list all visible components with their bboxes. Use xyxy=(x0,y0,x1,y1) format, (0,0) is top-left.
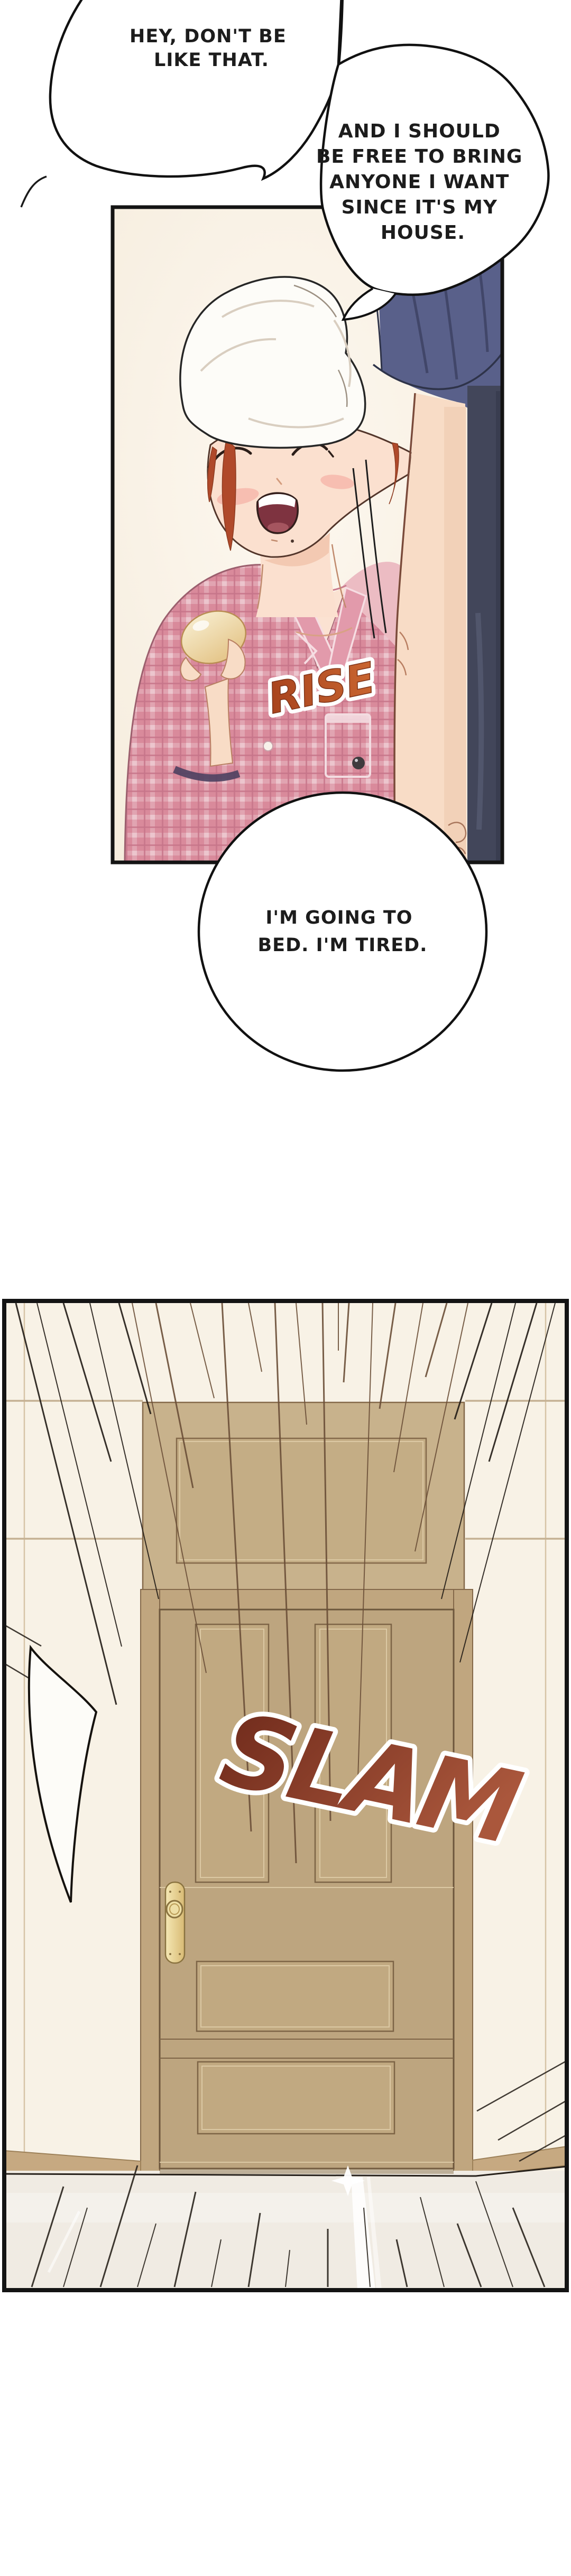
bubble-3-line-1: I'M GOING TO xyxy=(265,907,412,928)
pocket-piping xyxy=(326,714,370,723)
door-panel-bottom xyxy=(198,2062,394,2134)
bubble-2-line-4: SINCE IT'S MY xyxy=(342,197,498,218)
bubble-3-line-2: BED. I'M TIRED. xyxy=(258,935,428,956)
bubble-2-line-2: BE FREE TO BRING xyxy=(316,146,523,168)
bubble-1-line-2: LIKE THAT. xyxy=(154,50,269,71)
comic-page: RISE RISE xyxy=(0,0,571,2576)
bubble-2-line-1: AND I SHOULD xyxy=(338,120,501,142)
bubble-2-line-5: HOUSE. xyxy=(381,222,465,244)
door-handle xyxy=(165,1882,185,1963)
tongue xyxy=(268,523,289,532)
door-knob xyxy=(167,1901,182,1918)
speech-bubble-3 xyxy=(199,793,486,1071)
bubble-1-line-1: HEY, DON'T BE xyxy=(130,26,287,47)
door xyxy=(160,1610,454,2169)
handle-plate xyxy=(165,1882,185,1963)
panel-laughing-woman: RISE RISE xyxy=(113,207,508,862)
door-floor-shadow xyxy=(160,2169,454,2174)
comic-art: RISE RISE xyxy=(0,0,571,2576)
mole xyxy=(291,540,294,543)
dark-button-highlight xyxy=(355,759,358,762)
dark-button xyxy=(352,757,365,769)
door-panel-mid xyxy=(197,1961,393,2031)
panel-door-slam: SLAM SLAM xyxy=(4,1301,567,2290)
pajama-pocket xyxy=(326,714,370,777)
bubble-1-accent-stroke xyxy=(21,176,47,207)
arm-shading xyxy=(444,407,466,862)
transom-panel xyxy=(177,1438,426,1563)
door-casing-left xyxy=(141,1589,160,2176)
floor xyxy=(4,2171,567,2290)
door-casing-right xyxy=(454,1589,473,2176)
pajama-button xyxy=(263,741,273,751)
bubble-2-line-3: ANYONE I WANT xyxy=(329,171,509,193)
floor-light-band xyxy=(4,2193,567,2222)
